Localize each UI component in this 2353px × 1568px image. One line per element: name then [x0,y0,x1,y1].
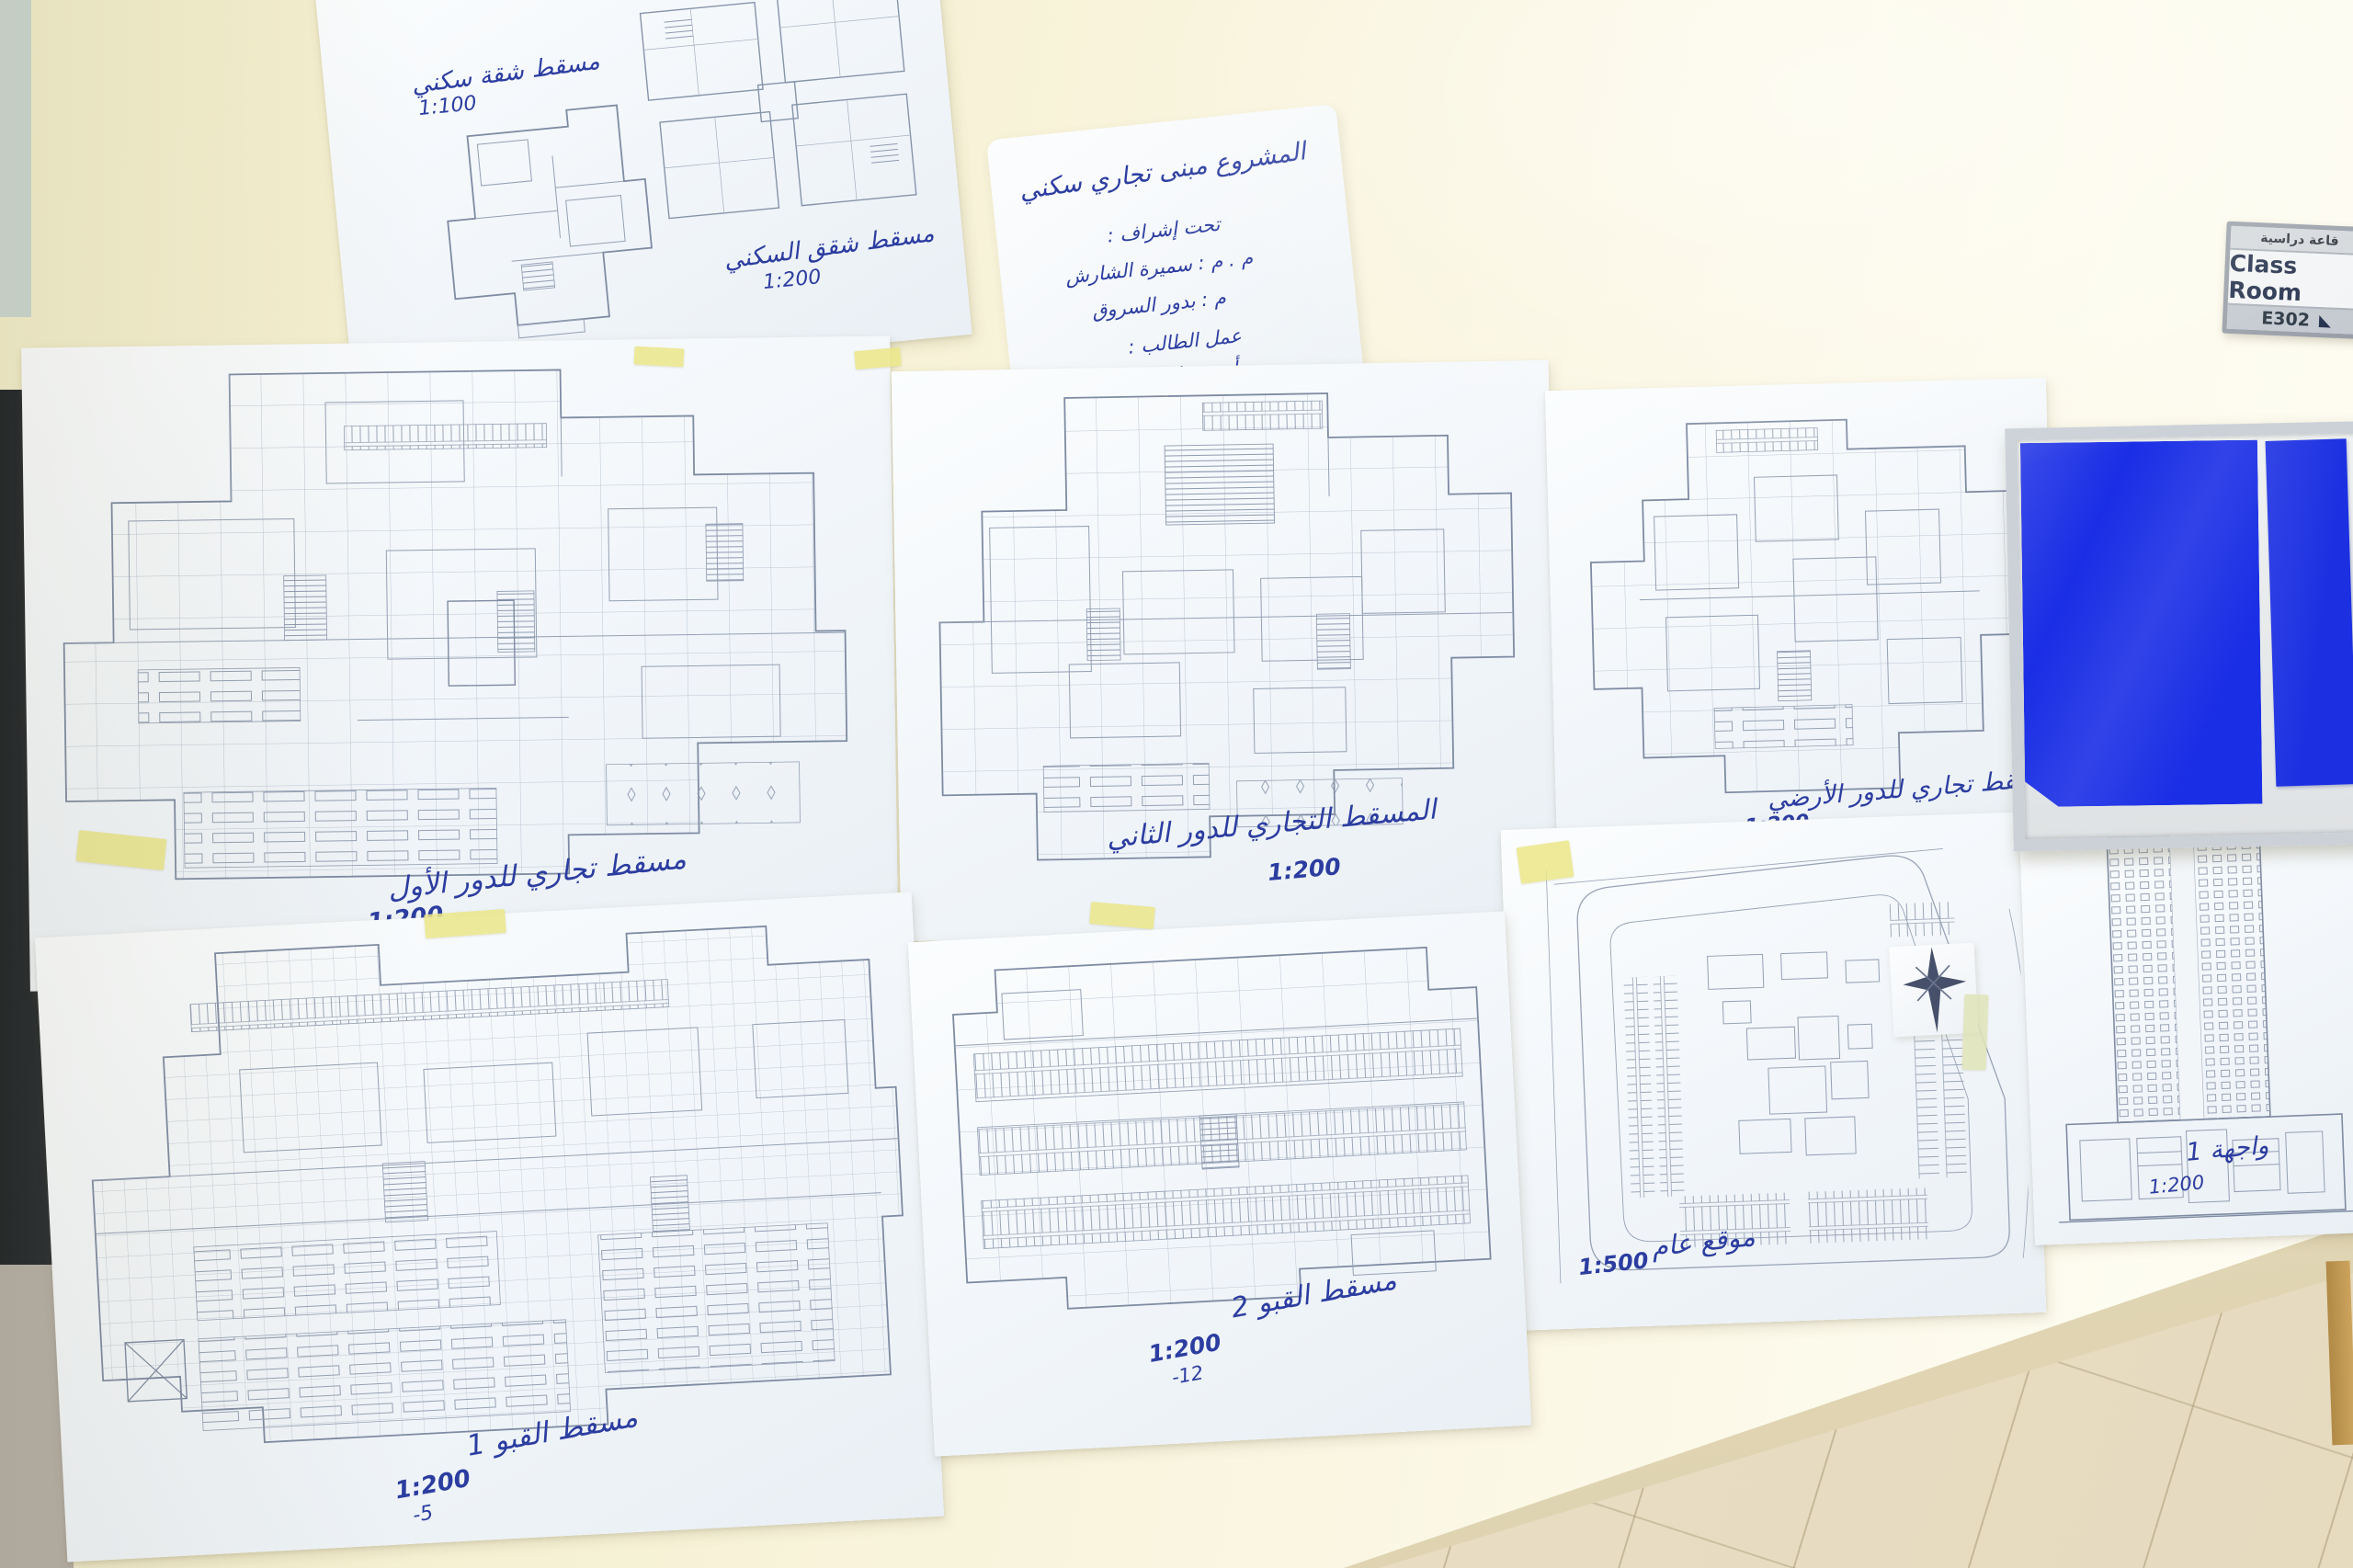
ceiling-corner-strip [0,0,31,317]
apartment-caption: مسقط شقة سكني [410,48,601,100]
room-sign-title: Class Room [2228,250,2353,309]
tape-piece [1516,840,1574,884]
classroom-wall-photo: مسقط شقة سكني 1:100 مسقط شقق السكني 1:20… [0,0,2353,1568]
basement2-drawing [941,936,1503,1340]
room-sign: قاعة دراسية Class Room E302 [2222,222,2353,340]
sheet-basement2: مسقط القبو 2 1:200 -12 [908,911,1531,1456]
basement1-level: -5 [411,1501,435,1527]
room-sign-number: E302 [2261,308,2311,330]
sheet-elevation: واجهة 1 1:200 [2018,801,2353,1245]
apartment-plan-drawing [410,92,666,348]
sheet-commercial-second-floor: المسقط التجاري للدور الثاني 1:200 [892,360,1559,941]
room-sign-arrow-icon [2319,315,2332,328]
title-line-5: عمل الطالب : [1127,324,1243,358]
tape-piece [854,347,902,369]
room-sign-number-row: E302 [2227,303,2353,335]
title-line-1: المشروع مبنى تجاري سكني [1017,137,1307,205]
sheet-commercial-first-floor: مسقط تجاري للدور الأول 1:200 [21,335,899,991]
title-line-2: تحت إشراف : [1106,213,1221,247]
sheet-apartment-plans: مسقط شقة سكني 1:100 مسقط شقق السكني 1:20… [314,0,972,393]
commercial-first-floor-drawing [49,355,865,917]
basement1-scale: 1:200 [393,1465,473,1506]
sheet-site-plan: موقع عام 1:500 [1501,812,2047,1331]
blue-paper-strip [2266,438,2353,787]
apartment-cluster-scale: 1:200 [762,266,823,294]
commercial-ground-floor-drawing [1578,405,2039,812]
title-line-4: م : بدور السروق [1091,287,1227,323]
blue-pin-board [2005,421,2353,852]
basement2-level: -12 [1170,1361,1205,1389]
basement2-scale: 1:200 [1146,1329,1222,1368]
apartment-cluster-plan-drawing [625,0,923,241]
title-line-3: م . م : سميرة الشارش [1064,246,1254,288]
tape-piece [1962,994,1989,1071]
tape-piece [634,347,685,368]
blue-paper-large [2020,440,2263,808]
sheet-basement1: مسقط القبو 1 1:200 -5 [35,892,944,1562]
site-plan-drawing [1520,835,2031,1294]
basement1-drawing [68,906,930,1464]
